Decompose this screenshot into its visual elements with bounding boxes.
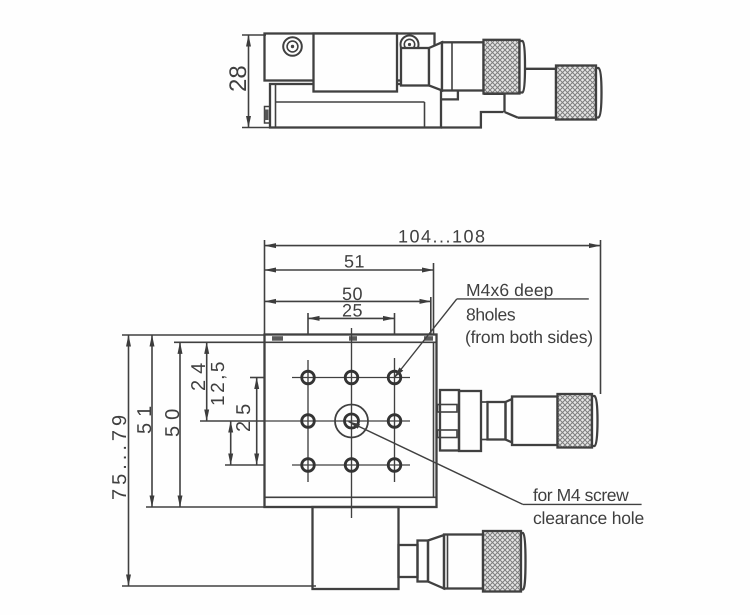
svg-text:25: 25 xyxy=(233,398,255,432)
svg-text:(from both sides): (from both sides) xyxy=(465,327,593,347)
svg-text:28: 28 xyxy=(225,65,252,92)
svg-text:104...108: 104...108 xyxy=(398,227,487,247)
svg-text:75...79: 75...79 xyxy=(109,411,131,500)
svg-text:24: 24 xyxy=(188,357,210,391)
svg-text:8holes: 8holes xyxy=(466,305,516,325)
svg-text:50: 50 xyxy=(162,403,184,437)
svg-text:51: 51 xyxy=(134,400,156,434)
svg-text:M4x6 deep: M4x6 deep xyxy=(466,280,554,300)
svg-text:51: 51 xyxy=(344,252,365,272)
svg-text:12,5: 12,5 xyxy=(208,359,229,406)
svg-text:25: 25 xyxy=(342,301,363,321)
svg-text:for M4 screw: for M4 screw xyxy=(533,485,629,505)
svg-text:clearance hole: clearance hole xyxy=(533,508,644,528)
